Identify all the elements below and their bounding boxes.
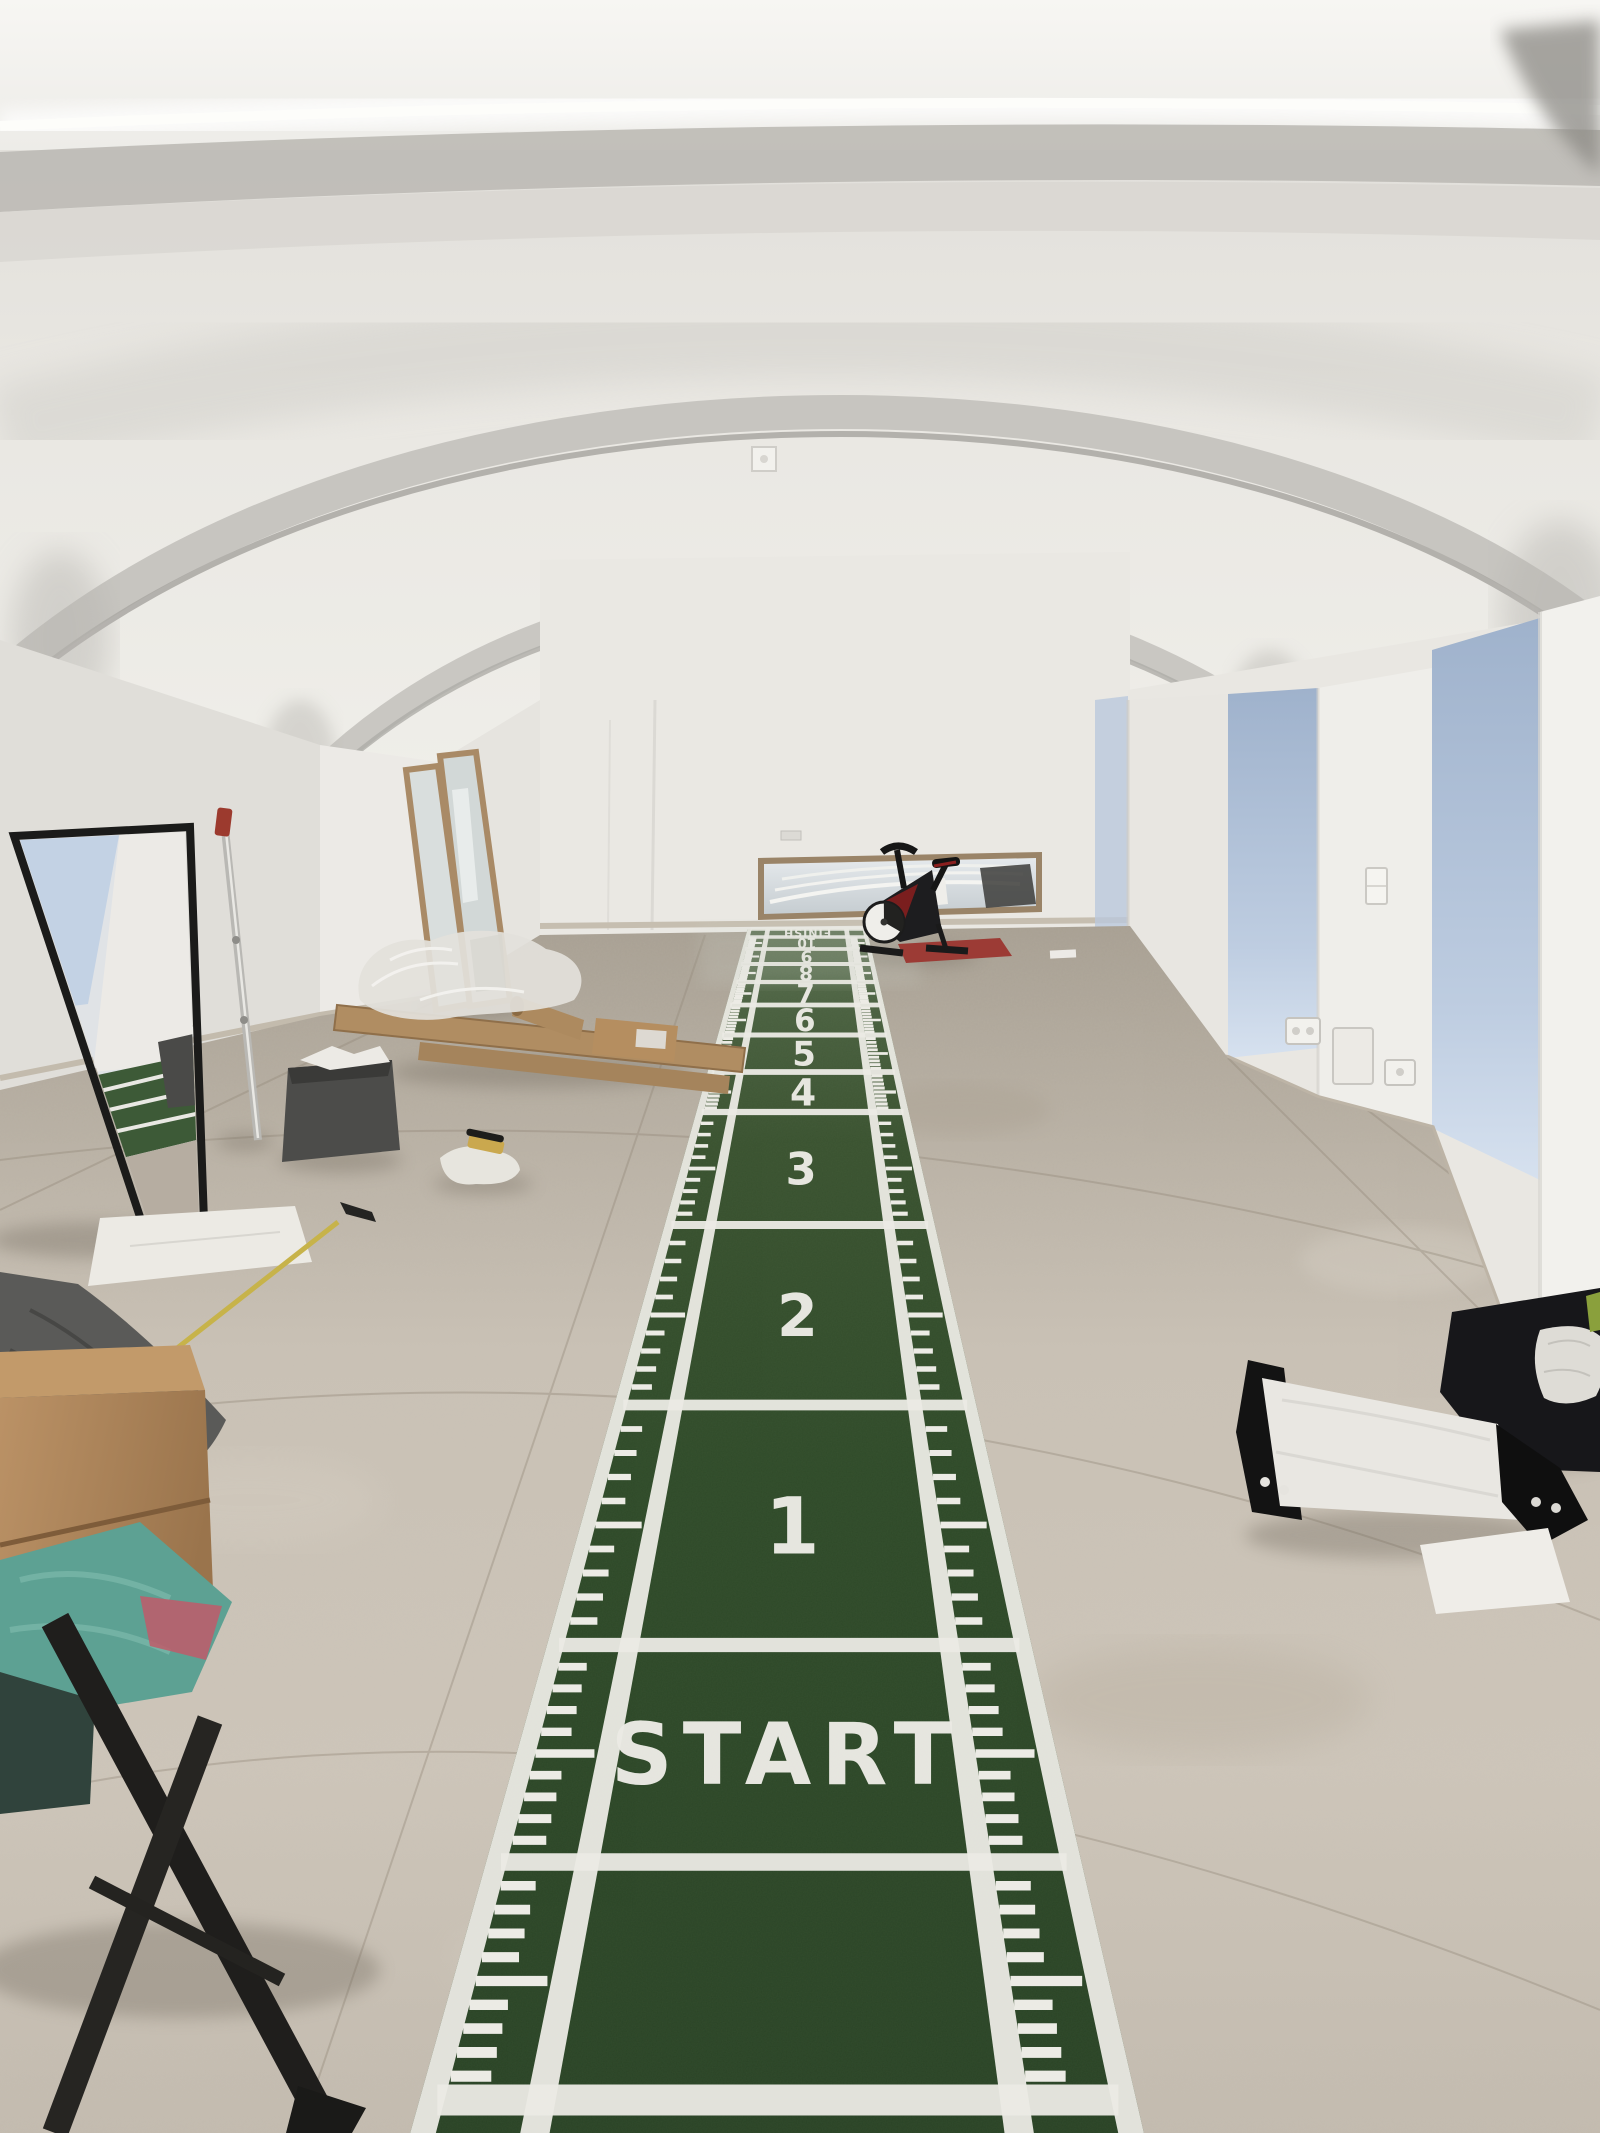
flywheel-hub — [881, 919, 888, 926]
floor-tape-piece — [1050, 949, 1076, 958]
socket-hole — [1396, 1068, 1404, 1076]
box-label — [635, 1029, 666, 1049]
daylight-niche-1 — [1228, 688, 1318, 1058]
gym-room-photo: 12345678910STARTFINISH — [0, 0, 1600, 2133]
floor-mottle — [1300, 1226, 1500, 1294]
back-wall-outlet — [781, 831, 801, 840]
grommet — [1551, 1503, 1561, 1513]
wall-outlet-double — [1286, 1018, 1320, 1044]
start-label: START — [611, 1705, 963, 1805]
bike-front-foot — [860, 948, 903, 953]
track-number-1: 1 — [765, 1480, 820, 1572]
socket-hole — [1292, 1027, 1300, 1035]
track-number-4: 4 — [790, 1071, 816, 1115]
track-number-5: 5 — [792, 1035, 816, 1075]
grommet — [1531, 1497, 1541, 1507]
socket-hole — [760, 455, 768, 463]
pole-bracket — [240, 1016, 248, 1024]
plastic-bag-inside — [1535, 1326, 1600, 1403]
wooden-box-top — [0, 1345, 205, 1398]
daylight-niche-2 — [1432, 618, 1540, 1180]
pole-bracket — [232, 936, 240, 944]
grommet — [1260, 1477, 1270, 1487]
socket-hole — [1306, 1027, 1314, 1035]
mirror-reflected-bike — [980, 864, 1036, 908]
track-number-3: 3 — [786, 1143, 817, 1196]
floor-mottle — [1030, 1645, 1370, 1755]
grommet — [1279, 1485, 1289, 1495]
track-number-2: 2 — [777, 1281, 818, 1350]
access-panel — [1333, 1028, 1373, 1084]
